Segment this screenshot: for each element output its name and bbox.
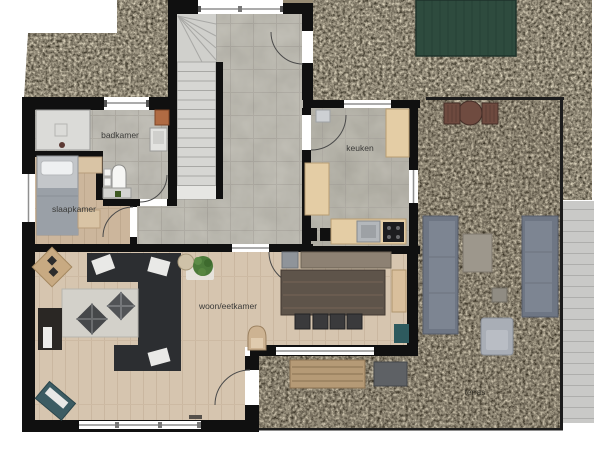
svg-text:slaapkamer: slaapkamer <box>52 204 96 214</box>
svg-text:badkamer: badkamer <box>101 130 139 140</box>
svg-text:terras: terras <box>465 388 485 397</box>
svg-text:keuken: keuken <box>346 143 374 153</box>
svg-text:woon/eetkamer: woon/eetkamer <box>198 301 257 311</box>
